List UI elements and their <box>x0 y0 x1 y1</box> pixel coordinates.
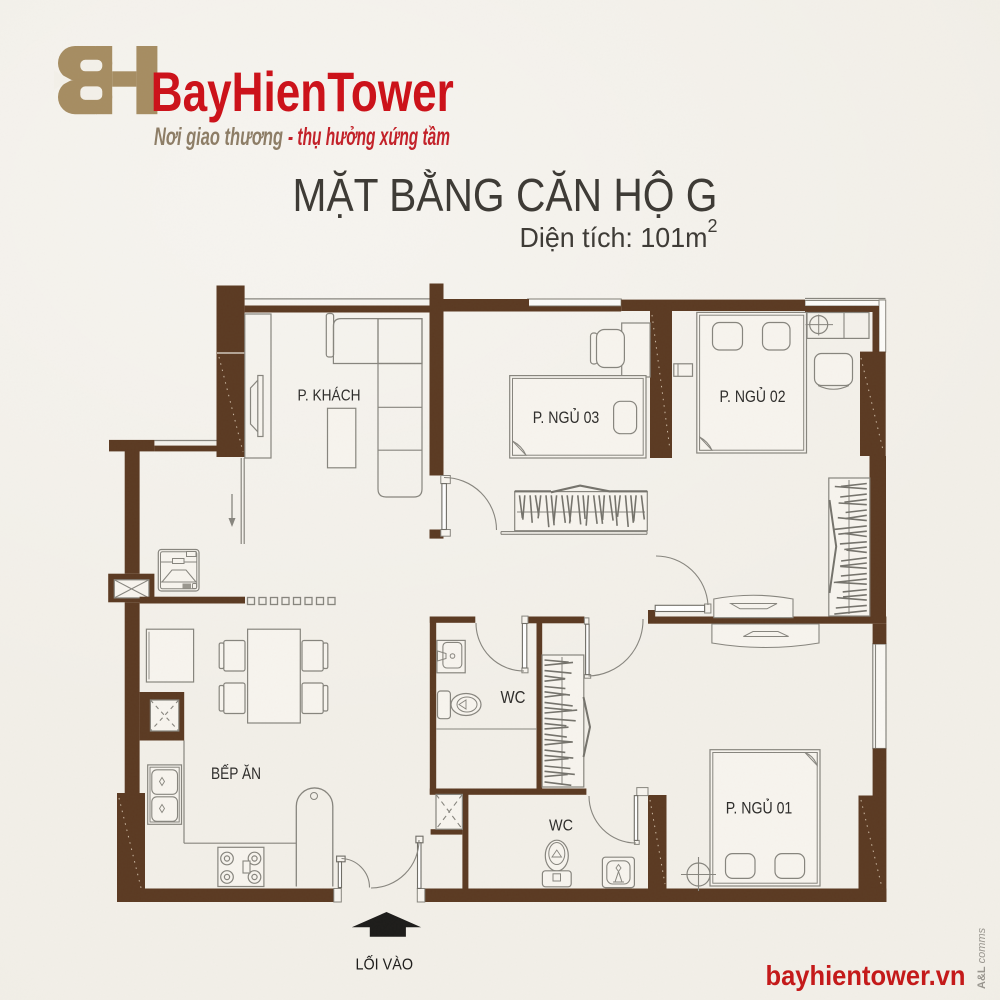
svg-text:bayhientower.vn: bayhientower.vn <box>766 960 966 991</box>
svg-text:P. NGỦ 01: P. NGỦ 01 <box>726 798 793 817</box>
